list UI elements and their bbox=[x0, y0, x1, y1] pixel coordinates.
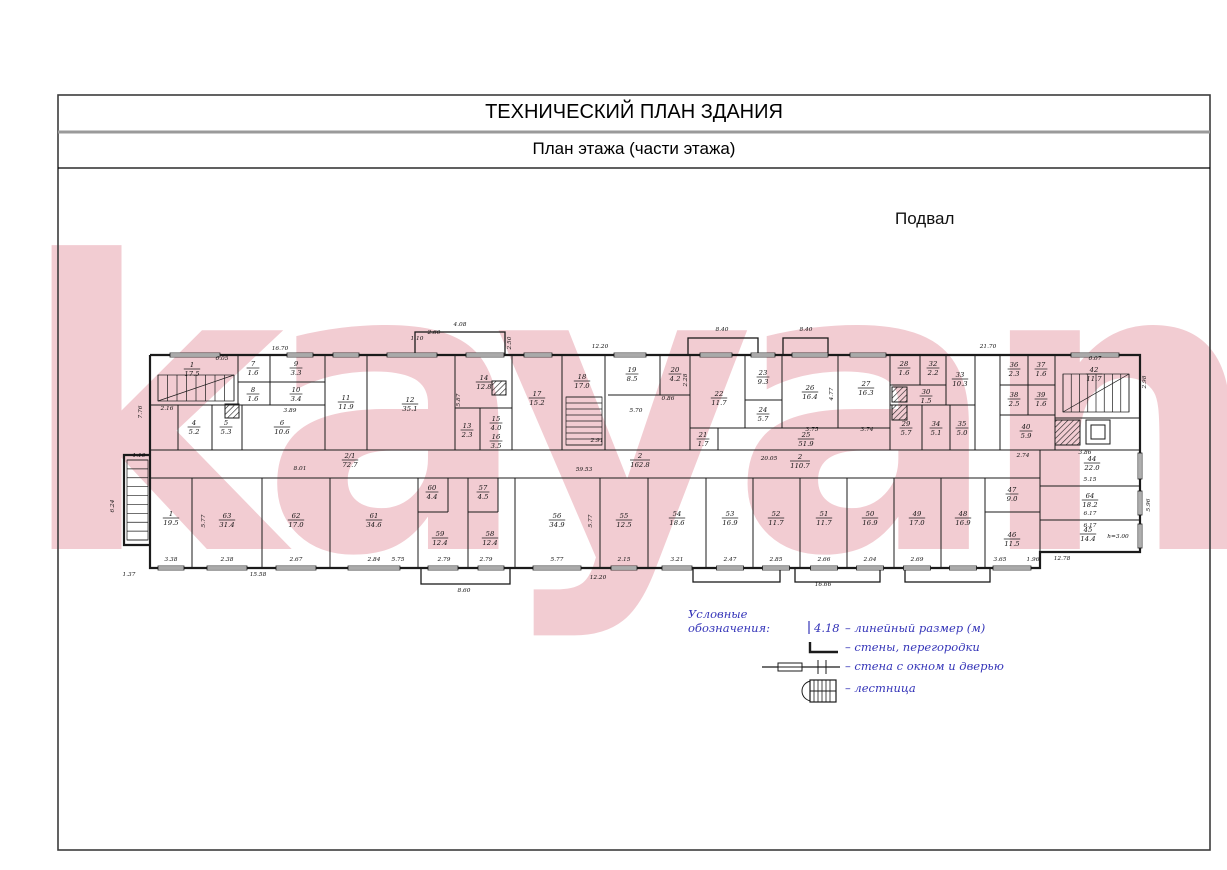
svg-text:37: 37 bbox=[1037, 361, 1046, 369]
svg-text:5.1: 5.1 bbox=[931, 429, 942, 437]
svg-text:4.4: 4.4 bbox=[426, 493, 438, 501]
svg-text:5: 5 bbox=[224, 419, 228, 427]
stairs bbox=[127, 460, 148, 540]
svg-text:26: 26 bbox=[805, 384, 815, 392]
room-label: 239.3 bbox=[757, 369, 770, 386]
svg-text:1.6: 1.6 bbox=[899, 369, 910, 377]
svg-text:18: 18 bbox=[578, 373, 587, 381]
svg-text:4.77: 4.77 bbox=[829, 387, 835, 401]
svg-text:3.74: 3.74 bbox=[861, 427, 874, 433]
svg-text:13: 13 bbox=[463, 422, 472, 430]
room-label: 6418.2 bbox=[1082, 492, 1098, 509]
staircase-icon bbox=[798, 678, 840, 707]
svg-text:2: 2 bbox=[637, 452, 642, 460]
room-label: 322.2 bbox=[927, 360, 940, 377]
svg-text:3.4: 3.4 bbox=[291, 395, 302, 403]
svg-text:2.2: 2.2 bbox=[927, 369, 939, 377]
svg-text:5.9: 5.9 bbox=[1021, 432, 1032, 440]
floor-plan-canvas: 117.571.693.381.6103.445.255.3610.61111.… bbox=[0, 0, 1227, 870]
room-label: 45.2 bbox=[188, 419, 201, 436]
svg-text:2.91: 2.91 bbox=[590, 438, 604, 444]
room-label: 117.5 bbox=[184, 361, 200, 378]
svg-text:15.58: 15.58 bbox=[250, 572, 267, 578]
svg-text:3.65: 3.65 bbox=[994, 557, 1007, 563]
room-label: 2716.3 bbox=[858, 380, 874, 397]
legend-item-label: – стены, перегородки bbox=[845, 640, 980, 654]
room-label: 371.6 bbox=[1035, 361, 1048, 378]
svg-text:15.2: 15.2 bbox=[529, 399, 544, 407]
svg-text:2/1: 2/1 bbox=[344, 452, 356, 460]
svg-text:2.67: 2.67 bbox=[289, 557, 303, 563]
svg-text:8.60: 8.60 bbox=[458, 588, 471, 594]
svg-text:h=3.00: h=3.00 bbox=[1107, 534, 1129, 540]
wall-corner-icon bbox=[806, 640, 842, 659]
shafts-layer bbox=[225, 381, 1110, 445]
svg-text:1.10: 1.10 bbox=[411, 336, 424, 342]
svg-text:10.6: 10.6 bbox=[274, 428, 290, 436]
svg-text:15: 15 bbox=[492, 415, 501, 423]
svg-text:4.5: 4.5 bbox=[477, 493, 489, 501]
svg-text:8.5: 8.5 bbox=[627, 375, 638, 383]
room-label: 604.4 bbox=[426, 484, 439, 501]
room-label: 6331.4 bbox=[219, 512, 235, 529]
svg-text:2.47: 2.47 bbox=[723, 557, 737, 563]
legend-item-label: – линейный размер (м) bbox=[845, 621, 985, 635]
svg-text:2.74: 2.74 bbox=[1016, 453, 1030, 459]
room-label: 281.6 bbox=[898, 360, 911, 377]
svg-text:8.40: 8.40 bbox=[716, 327, 729, 333]
svg-text:9.3: 9.3 bbox=[758, 378, 769, 386]
room-label: 198.5 bbox=[626, 366, 639, 383]
room-label: 245.7 bbox=[757, 406, 770, 423]
svg-text:72.7: 72.7 bbox=[342, 461, 358, 469]
svg-text:18.2: 18.2 bbox=[1082, 501, 1097, 509]
legend-item-label: – лестница bbox=[845, 681, 916, 695]
room-label: 5111.7 bbox=[816, 510, 832, 527]
svg-text:5.2: 5.2 bbox=[189, 428, 200, 436]
svg-text:35.1: 35.1 bbox=[402, 405, 417, 413]
svg-text:5.96: 5.96 bbox=[1146, 498, 1152, 511]
svg-text:1.96: 1.96 bbox=[1027, 557, 1040, 563]
svg-text:2.98: 2.98 bbox=[1142, 375, 1148, 389]
svg-text:21.70: 21.70 bbox=[979, 344, 997, 350]
svg-text:36: 36 bbox=[1010, 361, 1019, 369]
room-label: 1817.0 bbox=[574, 373, 590, 390]
svg-text:2.69: 2.69 bbox=[910, 557, 924, 563]
room-label: 6134.6 bbox=[366, 512, 382, 529]
room-label: 5316.9 bbox=[722, 510, 738, 527]
room-label: 1235.1 bbox=[402, 396, 418, 413]
svg-text:58: 58 bbox=[486, 530, 495, 538]
room-label: 3310.3 bbox=[952, 371, 968, 388]
room-label: 345.1 bbox=[930, 420, 943, 437]
svg-text:49: 49 bbox=[912, 510, 922, 518]
svg-text:59.53: 59.53 bbox=[576, 467, 593, 473]
document-page: kayan 117.571.693.381.6103.445.255.3610.… bbox=[0, 0, 1227, 870]
room-label: 2/172.7 bbox=[342, 452, 358, 469]
room-label: 382.5 bbox=[1008, 391, 1021, 408]
svg-text:51.9: 51.9 bbox=[798, 440, 814, 448]
svg-text:2.84: 2.84 bbox=[367, 557, 381, 563]
svg-text:2.15: 2.15 bbox=[617, 557, 631, 563]
room-label: 5812.4 bbox=[482, 530, 498, 547]
room-label: 5211.7 bbox=[768, 510, 784, 527]
svg-text:11.7: 11.7 bbox=[711, 399, 727, 407]
svg-text:2.79: 2.79 bbox=[479, 557, 493, 563]
dimensions-layer: 16.704.082.601.102.5012.208.408.4021.706… bbox=[110, 322, 1152, 594]
svg-text:16.66: 16.66 bbox=[815, 582, 832, 588]
svg-text:17.0: 17.0 bbox=[288, 521, 304, 529]
svg-text:2.3: 2.3 bbox=[461, 431, 473, 439]
wall-window-door-icon bbox=[762, 659, 840, 678]
svg-text:55: 55 bbox=[620, 512, 629, 520]
svg-text:42: 42 bbox=[1089, 366, 1099, 374]
svg-text:2.04: 2.04 bbox=[863, 557, 877, 563]
room-label: 5634.9 bbox=[549, 512, 565, 529]
svg-text:5.7: 5.7 bbox=[758, 415, 769, 423]
svg-text:61: 61 bbox=[370, 512, 379, 520]
svg-text:22: 22 bbox=[714, 390, 724, 398]
svg-text:4: 4 bbox=[191, 419, 196, 427]
svg-text:50: 50 bbox=[866, 510, 875, 518]
svg-text:12: 12 bbox=[406, 396, 415, 404]
room-label: 2616.4 bbox=[802, 384, 818, 401]
room-label: 154.0 bbox=[490, 415, 503, 432]
svg-text:2.3: 2.3 bbox=[1008, 370, 1020, 378]
svg-text:4.0: 4.0 bbox=[490, 424, 502, 432]
svg-text:62: 62 bbox=[292, 512, 301, 520]
room-label: 2211.7 bbox=[711, 390, 727, 407]
svg-text:2.66: 2.66 bbox=[817, 557, 831, 563]
svg-text:12.4: 12.4 bbox=[432, 539, 447, 547]
svg-text:3.38: 3.38 bbox=[165, 557, 178, 563]
page-subtitle: План этажа (части этажа) bbox=[58, 139, 1210, 159]
svg-text:12.5: 12.5 bbox=[616, 521, 631, 529]
svg-text:5.0: 5.0 bbox=[957, 429, 968, 437]
room-label: 103.4 bbox=[290, 386, 303, 403]
svg-text:10: 10 bbox=[292, 386, 301, 394]
svg-text:16.9: 16.9 bbox=[955, 519, 971, 527]
svg-text:47: 47 bbox=[1007, 486, 1017, 494]
svg-text:5.3: 5.3 bbox=[221, 428, 232, 436]
room-label: 5418.6 bbox=[669, 510, 685, 527]
svg-text:34.9: 34.9 bbox=[549, 521, 565, 529]
svg-text:33: 33 bbox=[956, 371, 965, 379]
page-title: ТЕХНИЧЕСКИЙ ПЛАН ЗДАНИЯ bbox=[58, 101, 1210, 124]
room-label: 93.3 bbox=[290, 360, 303, 377]
svg-text:12.20: 12.20 bbox=[590, 575, 607, 581]
svg-text:27: 27 bbox=[861, 380, 871, 388]
svg-text:3.5: 3.5 bbox=[491, 442, 502, 450]
svg-text:7.76: 7.76 bbox=[138, 405, 144, 418]
svg-text:2.60: 2.60 bbox=[427, 330, 441, 336]
svg-text:3.86: 3.86 bbox=[1079, 450, 1092, 456]
svg-text:54: 54 bbox=[673, 510, 682, 518]
svg-text:5.7: 5.7 bbox=[901, 429, 912, 437]
windows-layer bbox=[158, 353, 1142, 570]
svg-text:3.3: 3.3 bbox=[291, 369, 302, 377]
room-label: 362.3 bbox=[1008, 361, 1021, 378]
room-label: 5912.4 bbox=[432, 530, 448, 547]
svg-text:1.6: 1.6 bbox=[248, 395, 259, 403]
svg-text:38: 38 bbox=[1010, 391, 1019, 399]
svg-text:6.17: 6.17 bbox=[1084, 511, 1097, 517]
svg-text:5.75: 5.75 bbox=[392, 557, 405, 563]
svg-text:2.85: 2.85 bbox=[769, 557, 783, 563]
svg-text:0.86: 0.86 bbox=[662, 396, 675, 402]
room-label: 1715.2 bbox=[529, 390, 545, 407]
svg-text:52: 52 bbox=[772, 510, 781, 518]
svg-text:2.79: 2.79 bbox=[437, 557, 451, 563]
room-labels-layer: 117.571.693.381.6103.445.255.3610.61111.… bbox=[163, 360, 1102, 548]
svg-text:28: 28 bbox=[899, 360, 909, 368]
svg-text:4.08: 4.08 bbox=[453, 322, 467, 328]
svg-text:18.6: 18.6 bbox=[669, 519, 685, 527]
svg-text:6.05: 6.05 bbox=[216, 356, 229, 362]
room-label: 391.6 bbox=[1035, 391, 1048, 408]
svg-text:5.77: 5.77 bbox=[588, 514, 594, 527]
svg-text:17.0: 17.0 bbox=[909, 519, 925, 527]
svg-text:12.4: 12.4 bbox=[482, 539, 497, 547]
legend-heading: Условные обозначения: bbox=[688, 607, 770, 635]
svg-text:16.70: 16.70 bbox=[272, 346, 289, 352]
svg-text:11.7: 11.7 bbox=[768, 519, 784, 527]
svg-text:2.50: 2.50 bbox=[507, 336, 513, 350]
room-label: 4917.0 bbox=[909, 510, 925, 527]
svg-text:11.7: 11.7 bbox=[816, 519, 832, 527]
room-label: 2110.7 bbox=[790, 453, 810, 470]
svg-text:57: 57 bbox=[479, 484, 488, 492]
svg-text:19.5: 19.5 bbox=[163, 519, 178, 527]
svg-text:20.05: 20.05 bbox=[760, 456, 778, 462]
svg-text:8.40: 8.40 bbox=[800, 327, 813, 333]
room-label: 55.3 bbox=[220, 419, 233, 436]
svg-text:5.70: 5.70 bbox=[630, 408, 643, 414]
room-label: 4611.5 bbox=[1004, 531, 1020, 548]
svg-text:9.0: 9.0 bbox=[1007, 495, 1018, 503]
room-label: 81.6 bbox=[247, 386, 260, 403]
svg-text:32: 32 bbox=[929, 360, 938, 368]
room-label: 301.5 bbox=[920, 388, 933, 405]
room-label: 119.5 bbox=[163, 510, 179, 527]
legend-item-label: – стена с окном и дверью bbox=[845, 659, 1004, 673]
svg-text:5.77: 5.77 bbox=[201, 514, 207, 527]
svg-text:5.15: 5.15 bbox=[1084, 477, 1097, 483]
svg-text:12.20: 12.20 bbox=[592, 344, 609, 350]
svg-text:16.9: 16.9 bbox=[862, 519, 878, 527]
room-label: 355.0 bbox=[956, 420, 969, 437]
stairs bbox=[158, 375, 234, 401]
svg-text:12.78: 12.78 bbox=[1054, 556, 1071, 562]
svg-text:17.0: 17.0 bbox=[574, 382, 590, 390]
svg-text:5.87: 5.87 bbox=[456, 393, 462, 406]
svg-text:31.4: 31.4 bbox=[219, 521, 234, 529]
svg-text:23: 23 bbox=[758, 369, 768, 377]
svg-text:8: 8 bbox=[251, 386, 256, 394]
svg-text:39: 39 bbox=[1037, 391, 1046, 399]
svg-text:2: 2 bbox=[797, 453, 802, 461]
room-label: 163.5 bbox=[490, 433, 503, 450]
svg-text:40: 40 bbox=[1021, 423, 1031, 431]
svg-text:63: 63 bbox=[223, 512, 232, 520]
svg-text:17.5: 17.5 bbox=[184, 370, 199, 378]
svg-text:2.16: 2.16 bbox=[160, 406, 174, 412]
svg-text:48: 48 bbox=[958, 510, 968, 518]
room-label: 610.6 bbox=[274, 419, 290, 436]
svg-text:16.3: 16.3 bbox=[858, 389, 873, 397]
svg-text:16: 16 bbox=[492, 433, 501, 441]
svg-text:2.5: 2.5 bbox=[1008, 400, 1020, 408]
room-label: 4816.9 bbox=[955, 510, 971, 527]
room-label: 4422.0 bbox=[1083, 455, 1100, 472]
svg-text:29: 29 bbox=[901, 420, 911, 428]
svg-text:20: 20 bbox=[670, 366, 680, 374]
svg-text:8.01: 8.01 bbox=[294, 466, 307, 472]
svg-text:1.7: 1.7 bbox=[698, 440, 709, 448]
svg-text:11.9: 11.9 bbox=[338, 403, 354, 411]
svg-text:16.4: 16.4 bbox=[802, 393, 817, 401]
sheet-frame bbox=[58, 95, 1210, 850]
svg-text:3.89: 3.89 bbox=[284, 408, 297, 414]
svg-text:12.8: 12.8 bbox=[476, 383, 492, 391]
svg-text:11.7: 11.7 bbox=[1086, 375, 1102, 383]
svg-text:1.6: 1.6 bbox=[248, 369, 259, 377]
svg-text:44: 44 bbox=[1087, 455, 1097, 463]
svg-text:11: 11 bbox=[342, 394, 351, 402]
floor-label: Подвал bbox=[895, 209, 954, 229]
svg-text:1.5: 1.5 bbox=[921, 397, 932, 405]
dimension-mark-icon: 4.18 bbox=[806, 620, 846, 638]
room-label: 1412.8 bbox=[476, 374, 492, 391]
svg-text:2.28: 2.28 bbox=[683, 373, 689, 387]
svg-text:3.75: 3.75 bbox=[806, 427, 819, 433]
svg-text:60: 60 bbox=[428, 484, 437, 492]
svg-text:1.6: 1.6 bbox=[1036, 400, 1047, 408]
svg-text:3.21: 3.21 bbox=[671, 557, 684, 563]
room-label: 204.2 bbox=[669, 366, 682, 383]
svg-text:34.6: 34.6 bbox=[366, 521, 382, 529]
svg-text:4.2: 4.2 bbox=[669, 375, 681, 383]
room-label: 5512.5 bbox=[616, 512, 632, 529]
svg-text:51: 51 bbox=[820, 510, 829, 518]
svg-text:1.6: 1.6 bbox=[1036, 370, 1047, 378]
svg-text:1: 1 bbox=[169, 510, 173, 518]
svg-text:19: 19 bbox=[628, 366, 637, 374]
svg-text:7: 7 bbox=[251, 360, 256, 368]
room-label: 574.5 bbox=[477, 484, 490, 501]
svg-text:10.3: 10.3 bbox=[952, 380, 967, 388]
svg-text:162.8: 162.8 bbox=[630, 461, 650, 469]
svg-text:35: 35 bbox=[958, 420, 967, 428]
room-label: 295.7 bbox=[900, 420, 913, 437]
svg-text:24: 24 bbox=[758, 406, 768, 414]
svg-text:1.10: 1.10 bbox=[133, 453, 146, 459]
svg-text:46: 46 bbox=[1007, 531, 1017, 539]
svg-text:56: 56 bbox=[553, 512, 562, 520]
svg-text:6: 6 bbox=[280, 419, 285, 427]
svg-text:6.17: 6.17 bbox=[1084, 523, 1097, 529]
svg-text:5.77: 5.77 bbox=[551, 557, 564, 563]
svg-text:11.5: 11.5 bbox=[1004, 540, 1019, 548]
svg-text:14.4: 14.4 bbox=[1080, 535, 1095, 543]
svg-text:17: 17 bbox=[533, 390, 542, 398]
svg-text:9: 9 bbox=[294, 360, 299, 368]
dimension-sample: 4.18 bbox=[813, 621, 840, 635]
svg-text:1: 1 bbox=[190, 361, 194, 369]
room-label: 6217.0 bbox=[288, 512, 304, 529]
room-label: 2551.9 bbox=[798, 431, 814, 448]
room-label: 4211.7 bbox=[1086, 366, 1102, 383]
room-label: 479.0 bbox=[1006, 486, 1019, 503]
room-label: 1111.9 bbox=[338, 394, 354, 411]
room-label: 132.3 bbox=[461, 422, 474, 439]
room-label: 211.7 bbox=[697, 431, 710, 448]
room-label: 405.9 bbox=[1020, 423, 1033, 440]
room-label: 5016.9 bbox=[862, 510, 878, 527]
svg-text:1.37: 1.37 bbox=[123, 572, 136, 578]
svg-text:21: 21 bbox=[698, 431, 708, 439]
svg-text:59: 59 bbox=[436, 530, 445, 538]
svg-text:64: 64 bbox=[1086, 492, 1095, 500]
svg-text:34: 34 bbox=[932, 420, 941, 428]
room-label: 2162.8 bbox=[630, 452, 650, 469]
svg-text:30: 30 bbox=[922, 388, 931, 396]
room-label: 71.6 bbox=[247, 360, 260, 377]
svg-text:6.07: 6.07 bbox=[1089, 356, 1102, 362]
svg-text:6.24: 6.24 bbox=[110, 499, 116, 512]
svg-text:2.38: 2.38 bbox=[220, 557, 234, 563]
svg-text:16.9: 16.9 bbox=[722, 519, 738, 527]
svg-text:14: 14 bbox=[480, 374, 489, 382]
svg-text:53: 53 bbox=[726, 510, 735, 518]
svg-text:22.0: 22.0 bbox=[1083, 464, 1100, 472]
svg-text:110.7: 110.7 bbox=[790, 462, 810, 470]
